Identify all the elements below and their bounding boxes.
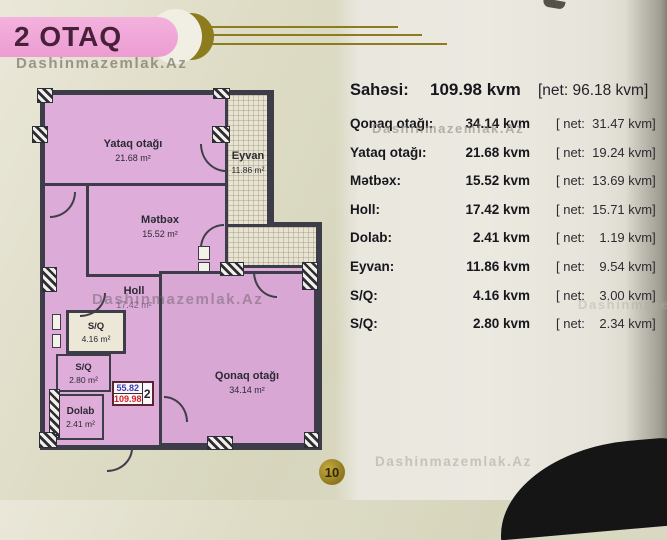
room-area: 4.16 m² — [82, 334, 111, 344]
room-label-yataq: Yataq otağı 21.68 m² — [78, 138, 188, 163]
row-label: S/Q: — [350, 316, 458, 331]
gold-line — [203, 34, 422, 36]
row-value: 11.86 kvm — [458, 259, 530, 274]
row-label: Mətbəx: — [350, 173, 458, 188]
total-area-net: [net: 96.18 kvm] — [538, 82, 648, 100]
room-dolab: Dolab 2.41 m² — [57, 394, 104, 440]
fixture — [198, 246, 210, 260]
column-hatch — [207, 436, 233, 450]
fixture — [198, 262, 210, 272]
table-row: S/Q: 4.16 kvm [ net: 3.00 kvm] — [350, 288, 665, 317]
room-area: 11.86 m² — [224, 165, 272, 175]
gold-line — [200, 26, 398, 28]
row-net: [ net: 15.71 kvm] — [556, 202, 656, 217]
fixture — [52, 314, 61, 330]
row-label: Qonaq otağı: — [350, 116, 458, 131]
table-row: Eyvan: 11.86 kvm [ net: 9.54 kvm] — [350, 259, 665, 288]
row-net: [ net: 1.19 kvm] — [556, 230, 656, 245]
fixture — [52, 334, 61, 348]
row-net: [ net: 9.54 kvm] — [556, 259, 656, 274]
row-value: 17.42 kvm — [458, 202, 530, 217]
row-net: [ net: 31.47 kvm] — [556, 116, 656, 131]
gold-line — [200, 43, 447, 45]
table-row: Qonaq otağı: 34.14 kvm [ net: 31.47 kvm] — [350, 116, 665, 145]
room-name: Dolab — [67, 406, 95, 417]
room-name: Qonaq otağı — [192, 370, 302, 382]
row-value: 34.14 kvm — [458, 116, 530, 131]
column-hatch — [304, 432, 319, 448]
room-area: 2.41 m² — [66, 419, 95, 429]
room-label-sq1: S/Q 4.16 m² — [69, 313, 123, 351]
room-name: Holl — [108, 285, 160, 297]
unit-total-area: 109.98 — [114, 394, 142, 405]
column-hatch — [32, 126, 48, 143]
floor-plan-page: { "header": { "title": "2 OTAQ" }, "wate… — [0, 0, 667, 500]
column-hatch — [37, 88, 53, 103]
room-name: Mətbəx — [112, 214, 208, 226]
room-area: 2.80 m² — [69, 375, 98, 385]
table-row: Mətbəx: 15.52 kvm [ net: 13.69 kvm] — [350, 173, 665, 202]
room-label-eyvan: Eyvan 11.86 m² — [224, 150, 272, 175]
total-area-label: Sahəsi: — [350, 81, 430, 100]
row-net: [ net: 13.69 kvm] — [556, 173, 656, 188]
row-value: 2.80 kvm — [458, 316, 530, 331]
room-area: 34.14 m² — [192, 385, 302, 395]
row-label: Yataq otağı: — [350, 145, 458, 160]
room-area-rows: Qonaq otağı: 34.14 kvm [ net: 31.47 kvm]… — [350, 116, 665, 345]
column-hatch — [39, 432, 57, 448]
table-row: Holl: 17.42 kvm [ net: 15.71 kvm] — [350, 202, 665, 231]
column-hatch — [213, 88, 230, 99]
row-net: [ net: 3.00 kvm] — [556, 288, 656, 303]
row-net: [ net: 2.34 kvm] — [556, 316, 656, 331]
row-value: 21.68 kvm — [458, 145, 530, 160]
unit-areas: 55.82 109.98 — [114, 383, 142, 404]
row-value: 15.52 kvm — [458, 173, 530, 188]
page-title: 2 OTAQ — [14, 21, 122, 53]
table-row: Yataq otağı: 21.68 kvm [ net: 19.24 kvm] — [350, 145, 665, 174]
room-sq-2: S/Q 2.80 m² — [56, 354, 111, 392]
row-label: S/Q: — [350, 288, 458, 303]
unit-net-area: 55.82 — [114, 383, 142, 394]
room-area: 17.42 m² — [108, 300, 160, 310]
column-hatch — [220, 262, 244, 276]
unit-info-box: 55.82 109.98 2 — [112, 381, 154, 406]
column-hatch — [42, 267, 57, 292]
room-label-dolab: Dolab 2.41 m² — [59, 396, 102, 438]
row-net: [ net: 19.24 kvm] — [556, 145, 656, 160]
area-table: Sahəsi: 109.98 kvm [net: 96.18 kvm] Qona… — [350, 80, 665, 345]
room-label-qonaq: Qonaq otağı 34.14 m² — [192, 370, 302, 395]
room-area: 15.52 m² — [112, 229, 208, 239]
total-area-value: 109.98 kvm — [430, 80, 538, 100]
row-value: 4.16 kvm — [458, 288, 530, 303]
row-label: Dolab: — [350, 230, 458, 245]
room-name: S/Q — [88, 321, 104, 332]
column-hatch — [212, 126, 230, 143]
door-arc — [107, 448, 133, 472]
column-hatch — [49, 389, 60, 438]
row-label: Holl: — [350, 202, 458, 217]
row-value: 2.41 kvm — [458, 230, 530, 245]
room-name: Eyvan — [224, 150, 272, 162]
room-name: Yataq otağı — [78, 138, 188, 150]
room-label-holl: Holl 17.42 m² — [108, 285, 160, 310]
table-row: S/Q: 2.80 kvm [ net: 2.34 kvm] — [350, 316, 665, 345]
room-sq-1: S/Q 4.16 m² — [66, 310, 126, 354]
floor-plan: S/Q 4.16 m² S/Q 2.80 m² Dolab 2.41 m² Ya… — [30, 86, 332, 458]
total-area-row: Sahəsi: 109.98 kvm [net: 96.18 kvm] — [350, 80, 665, 100]
table-row: Dolab: 2.41 kvm [ net: 1.19 kvm] — [350, 230, 665, 259]
column-hatch — [302, 262, 318, 290]
page-number-badge: 10 — [319, 459, 345, 485]
room-name: S/Q — [75, 362, 91, 373]
room-label-metbex: Mətbəx 15.52 m² — [112, 214, 208, 239]
room-label-sq2: S/Q 2.80 m² — [58, 356, 109, 390]
page-title-pill: 2 OTAQ — [0, 17, 178, 57]
row-label: Eyvan: — [350, 259, 458, 274]
room-area: 21.68 m² — [78, 153, 188, 163]
unit-number: 2 — [142, 383, 152, 404]
